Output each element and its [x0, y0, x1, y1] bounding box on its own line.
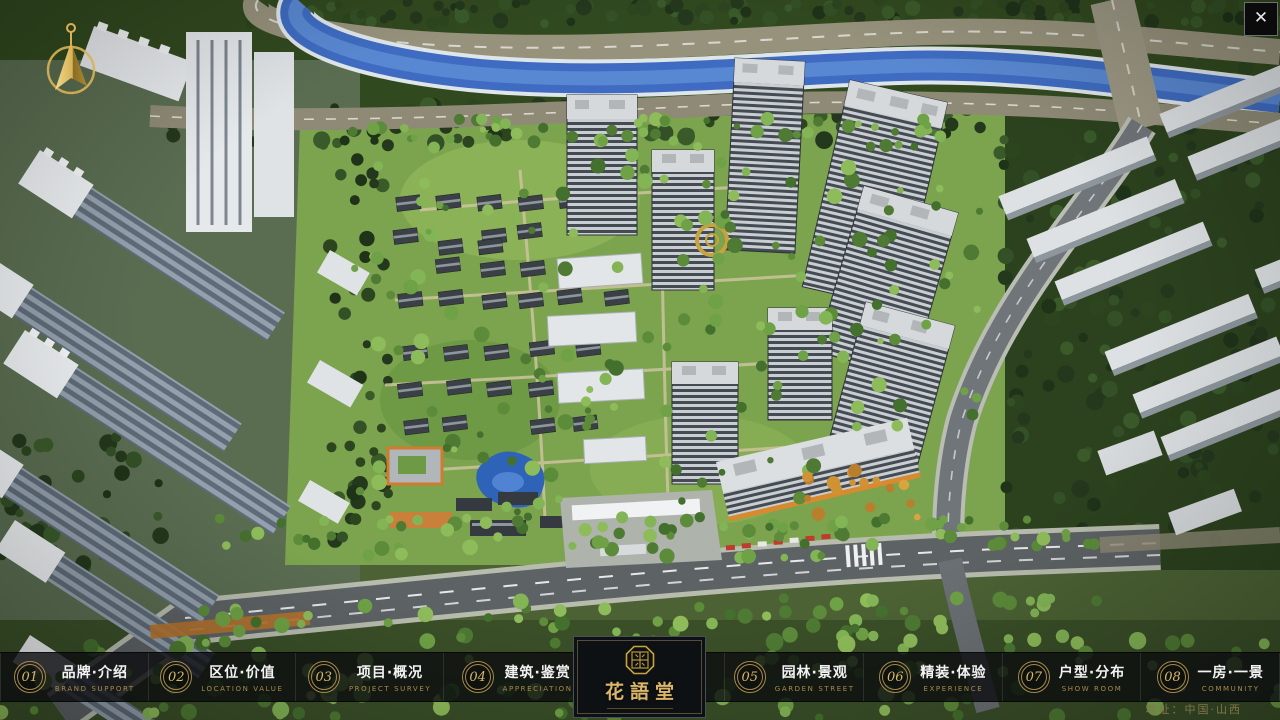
nav-label-cn: 户型·分布 [1059, 662, 1125, 682]
nav-number-badge: 04 [462, 661, 494, 693]
nav-label-en: BRAND SUPPORT [55, 685, 135, 693]
nav-item-brand[interactable]: 01 品牌·介绍 BRAND SUPPORT [0, 653, 148, 701]
nav-item-project[interactable]: 03 项目·概况 PROJECT SURVEY [295, 653, 443, 701]
nav-number-badge: 05 [734, 661, 766, 693]
nav-label-cn: 项目·概况 [357, 662, 423, 682]
nav-item-interior[interactable]: 06 精装·体验 EXPERIENCE [863, 653, 1002, 701]
nav-number-badge: 06 [879, 661, 911, 693]
brand-seal-icon [625, 645, 655, 675]
nav-number-badge: 08 [1157, 661, 1189, 693]
nav-item-location[interactable]: 02 区位·价值 LOCATION VALUE [148, 653, 296, 701]
nav-item-floorplan[interactable]: 07 户型·分布 SHOW ROOM [1002, 653, 1141, 701]
brand-logo-panel[interactable]: 花語堂 [573, 636, 706, 718]
nav-label-en: PROJECT SURVEY [349, 685, 431, 693]
sales-presentation-window: ✕ 01 品牌·介绍 BRAND SUPPORT 02 区位·价值 LOCATI… [0, 0, 1280, 720]
nav-label-cn: 区位·价值 [209, 662, 275, 682]
nav-number-badge: 07 [1018, 661, 1050, 693]
compass-icon [38, 14, 102, 102]
nav-number-badge: 02 [160, 661, 192, 693]
nav-label-cn: 建筑·鉴赏 [504, 662, 570, 682]
nav-label-cn: 品牌·介绍 [62, 662, 128, 682]
nav-label-en: SHOW ROOM [1062, 685, 1123, 693]
nav-label-en: APPRECIATION [503, 685, 573, 693]
project-address: 地址：中国·山西 [1146, 701, 1243, 717]
brand-rule [607, 708, 673, 709]
nav-item-architecture[interactable]: 04 建筑·鉴赏 APPRECIATION [443, 653, 591, 701]
brand-name: 花語堂 [605, 677, 680, 704]
nav-label-en: GARDEN STREET [775, 685, 855, 693]
nav-item-garden[interactable]: 05 园林·景观 GARDEN STREET [724, 653, 863, 701]
nav-group-right: 05 园林·景观 GARDEN STREET 06 精装·体验 EXPERIEN… [724, 653, 1280, 701]
close-button[interactable]: ✕ [1244, 2, 1278, 36]
nav-item-view[interactable]: 08 一房·一景 COMMUNITY [1140, 653, 1280, 701]
nav-group-left: 01 品牌·介绍 BRAND SUPPORT 02 区位·价值 LOCATION… [0, 653, 590, 701]
nav-label-cn: 精装·体验 [920, 662, 986, 682]
nav-label-cn: 园林·景观 [782, 662, 848, 682]
nav-label-en: LOCATION VALUE [201, 685, 283, 693]
nav-number-badge: 01 [14, 661, 46, 693]
nav-label-en: COMMUNITY [1202, 685, 1260, 693]
nav-number-badge: 03 [308, 661, 340, 693]
nav-label-en: EXPERIENCE [924, 685, 984, 693]
site-plan-rendering [0, 0, 1280, 720]
nav-label-cn: 一房·一景 [1198, 662, 1264, 682]
